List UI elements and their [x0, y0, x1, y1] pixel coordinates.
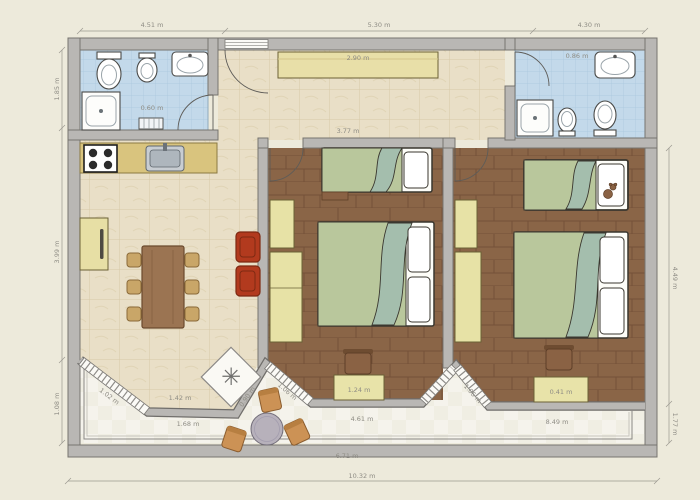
bedroom-1-north-wall-stub — [258, 138, 268, 148]
outer-wall-bottom — [68, 445, 657, 457]
armchair — [236, 266, 260, 296]
dim-label: 6.71 m — [336, 452, 359, 460]
dining-chair — [185, 253, 199, 267]
dim-label: 10.32 m — [348, 472, 375, 480]
sink — [172, 52, 208, 76]
dim-label: 1.77 m — [671, 413, 679, 436]
dim-label: 1.24 m — [348, 386, 371, 394]
bathroom-1-east-wall — [208, 38, 218, 95]
single-bed — [524, 160, 628, 210]
entrance-door-sill — [225, 40, 268, 49]
dim-label: 0.60 m — [141, 104, 164, 112]
shower — [82, 92, 120, 130]
desk-chair — [546, 349, 572, 370]
sink — [595, 52, 635, 78]
dim-label: 4.49 m — [671, 267, 679, 290]
wardrobe — [270, 200, 294, 248]
wardrobe — [455, 252, 481, 342]
dim-label: 1.68 m — [177, 420, 200, 428]
outer-wall-right — [645, 38, 657, 457]
terrace-chair — [258, 387, 282, 413]
desk-chair — [345, 353, 371, 374]
toilet — [594, 101, 616, 136]
dining-chair — [185, 280, 199, 294]
outer-wall-left — [68, 38, 80, 457]
bidet — [558, 108, 576, 136]
dining-chair — [127, 253, 141, 267]
sideboard — [80, 218, 108, 270]
outer-wall-top — [68, 38, 657, 50]
dim-label: 1.42 m — [169, 394, 192, 402]
dim-label: 1.85 m — [53, 78, 61, 101]
dim-label: 8.49 m — [546, 418, 569, 426]
dim-label: 5.30 m — [368, 21, 391, 29]
dim-label: 3.99 m — [53, 241, 61, 264]
dim-label: 1.08 m — [53, 393, 61, 416]
dim-label: 3.77 m — [337, 127, 360, 135]
dim-label: 4.51 m — [141, 21, 164, 29]
floor-plan-canvas: ✳ — [0, 0, 700, 500]
shower — [517, 100, 553, 136]
kitchen-sink — [146, 143, 184, 171]
dim-label: 0.86 m — [566, 52, 589, 60]
dim-label: 0.41 m — [550, 388, 573, 396]
dim-label: 4.61 m — [351, 415, 374, 423]
dining-chair — [185, 307, 199, 321]
bedroom-1-north-wall — [303, 138, 453, 148]
dim-label: 4.30 m — [578, 21, 601, 29]
single-bed — [322, 148, 432, 192]
kitchen — [80, 143, 217, 173]
bathroom-1-south-wall — [68, 130, 218, 140]
floor-plan-image: ✳ — [0, 0, 700, 500]
dining-table — [142, 246, 184, 328]
dining-chair — [127, 280, 141, 294]
wardrobe — [270, 252, 302, 342]
radiator — [139, 118, 163, 129]
bed-bench — [322, 192, 348, 200]
double-bed — [318, 222, 434, 326]
wardrobe — [455, 200, 477, 248]
fan-icon: ✳ — [221, 363, 241, 391]
bathroom-2-west-wall-bottom — [505, 86, 515, 140]
dim-label: 2.90 m — [347, 54, 370, 62]
toilet — [97, 52, 121, 89]
double-bed — [514, 232, 628, 338]
armchair — [236, 232, 260, 262]
stove — [84, 145, 117, 172]
bidet — [137, 53, 157, 82]
bedroom1-bedroom2-wall — [443, 148, 453, 368]
bedroom-2-north-wall-stub — [443, 138, 455, 148]
bathroom-2-west-wall-top — [505, 38, 515, 50]
dining-chair — [127, 307, 141, 321]
round-table — [251, 413, 283, 445]
